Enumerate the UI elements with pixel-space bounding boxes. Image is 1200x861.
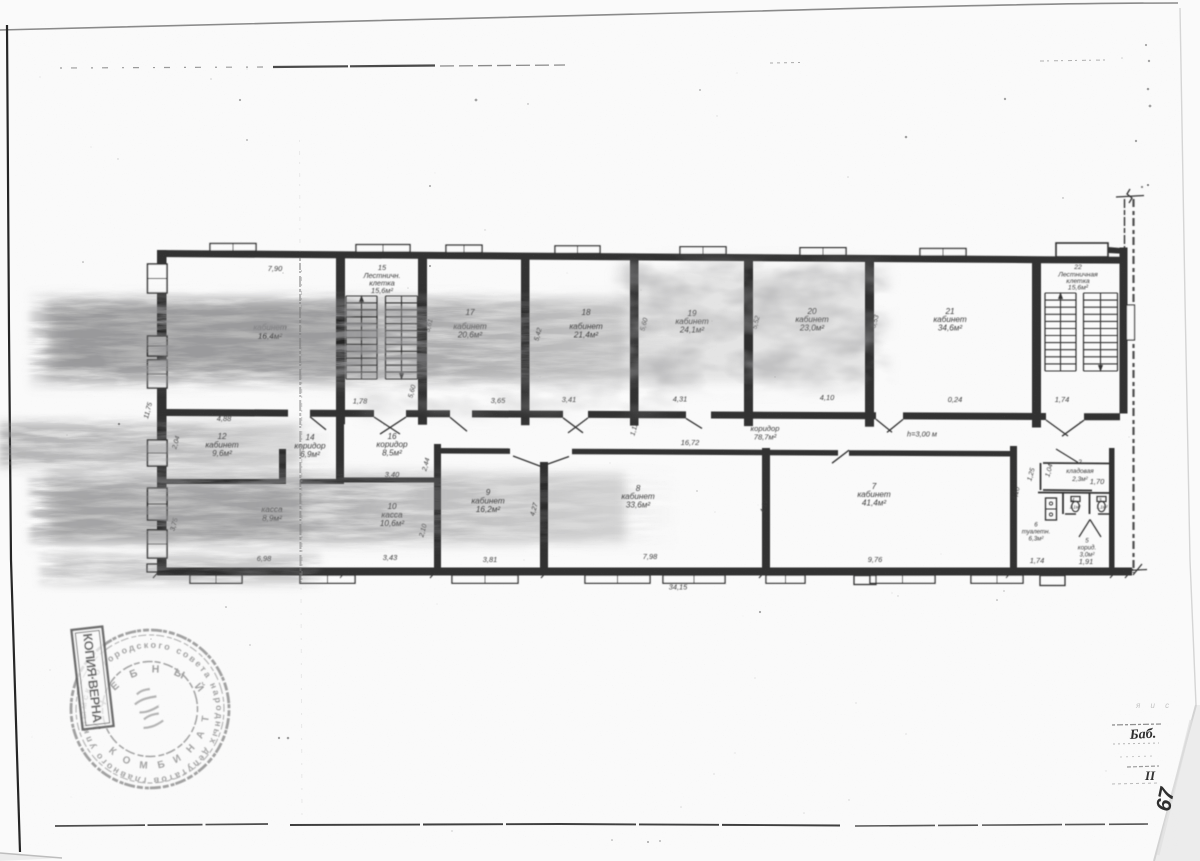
svg-text:Баб.: Баб. bbox=[1128, 727, 1156, 743]
svg-text:я и с: я и с bbox=[1135, 701, 1173, 710]
svg-text:II: II bbox=[1144, 768, 1156, 783]
